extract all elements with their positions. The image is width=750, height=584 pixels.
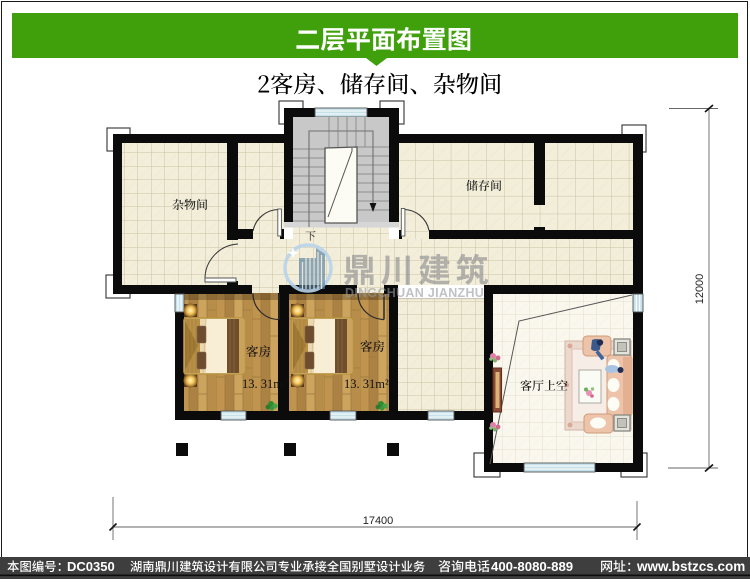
svg-text:www.bstzcs.com: www.bstzcs.com	[636, 559, 745, 574]
svg-text:13. 31m²: 13. 31m²	[242, 377, 287, 391]
svg-text:13. 31m²: 13. 31m²	[344, 377, 389, 391]
svg-text:12000: 12000	[694, 274, 706, 305]
svg-text:17400: 17400	[363, 515, 394, 527]
svg-text:400-8080-889: 400-8080-889	[491, 559, 573, 574]
svg-text:DC0350: DC0350	[67, 559, 115, 574]
svg-text:DINGCHUAN JIANZHU: DINGCHUAN JIANZHU	[345, 286, 484, 300]
